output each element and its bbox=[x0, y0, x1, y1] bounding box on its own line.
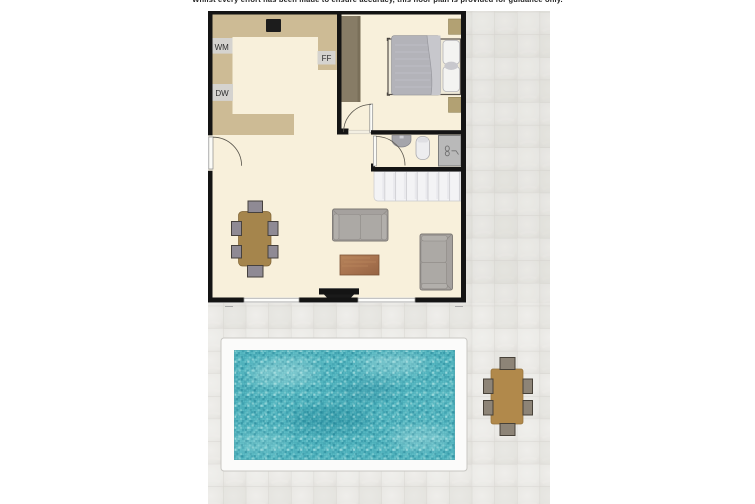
svg-text:WM: WM bbox=[215, 43, 230, 52]
svg-text:DW: DW bbox=[215, 89, 229, 98]
svg-text:FF: FF bbox=[322, 54, 332, 63]
